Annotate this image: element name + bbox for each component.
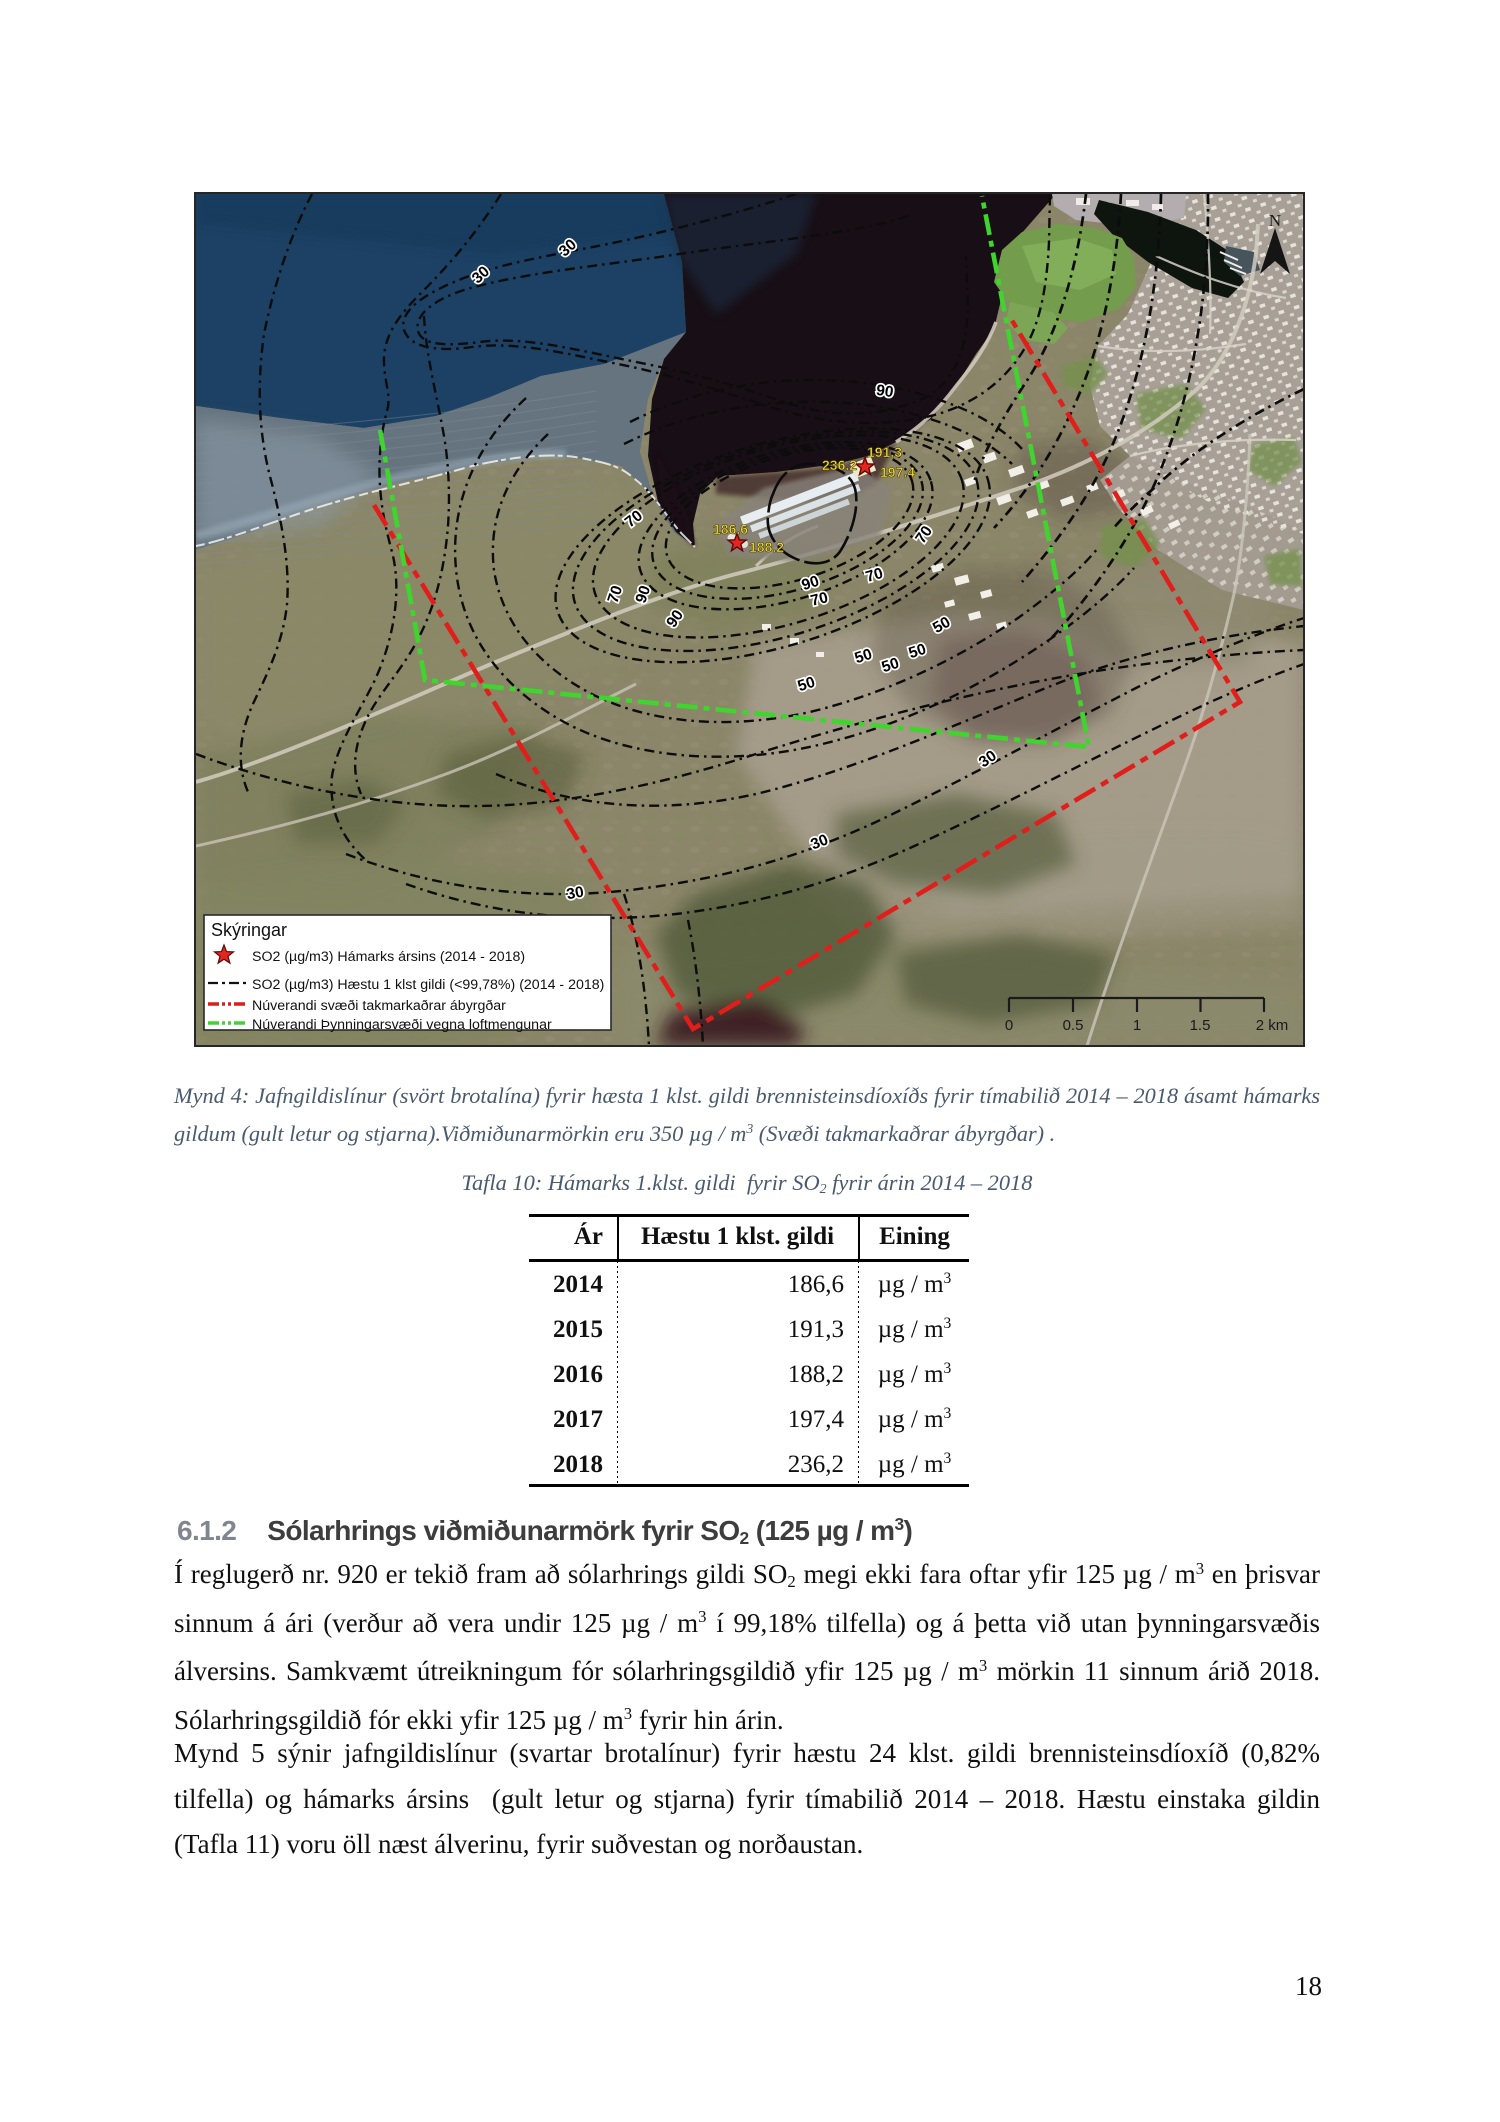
- svg-text:0.5: 0.5: [1063, 1017, 1084, 1034]
- svg-text:Núverandi Þynningarsvæði vegna: Núverandi Þynningarsvæði vegna loftmengu…: [252, 1017, 552, 1033]
- svg-text:SO2 (µg/m3) Hæstu 1 klst gildi: SO2 (µg/m3) Hæstu 1 klst gildi (<99,78%)…: [252, 977, 604, 993]
- svg-text:1.5: 1.5: [1190, 1017, 1211, 1034]
- svg-text:30: 30: [565, 884, 585, 904]
- svg-text:2 km: 2 km: [1256, 1017, 1289, 1034]
- svg-text:0: 0: [1005, 1017, 1013, 1034]
- svg-text:236.2: 236.2: [822, 457, 857, 473]
- svg-text:SO2 (µg/m3) Hámarks ársins (20: SO2 (µg/m3) Hámarks ársins (2014 - 2018): [252, 949, 525, 965]
- svg-text:Skýringar: Skýringar: [211, 920, 287, 940]
- svg-text:90: 90: [875, 382, 894, 401]
- svg-text:197.4: 197.4: [880, 464, 915, 480]
- svg-text:188.2: 188.2: [749, 539, 784, 555]
- svg-text:186.6: 186.6: [713, 521, 748, 537]
- svg-text:N: N: [1269, 211, 1281, 230]
- svg-text:1: 1: [1133, 1017, 1141, 1034]
- svg-text:Núverandi svæði takmarkaðrar á: Núverandi svæði takmarkaðrar ábyrgðar: [252, 998, 506, 1014]
- svg-text:191.3: 191.3: [867, 444, 902, 460]
